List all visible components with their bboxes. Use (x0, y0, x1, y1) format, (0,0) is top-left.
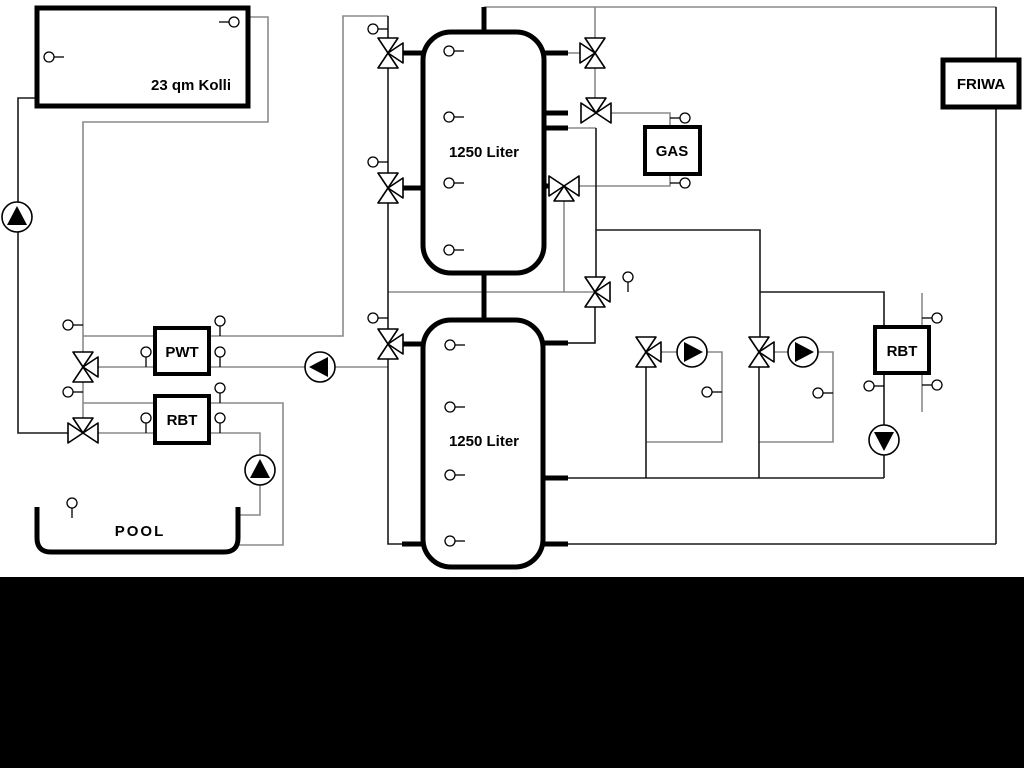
three-way-valve-heating-circuit-1 (636, 337, 661, 367)
sensor-rail-right-1-icon (922, 313, 942, 323)
rbt-left-label: RBT (167, 412, 198, 429)
tank-lower-label: 1250 Liter (449, 433, 519, 450)
sensor-rail-1-icon (368, 24, 388, 34)
sensor-circuit2-icon (813, 388, 833, 398)
gas-label: GAS (656, 143, 689, 160)
pipe-rail-tanks-right (568, 128, 596, 343)
sensor-rail-3-icon (368, 313, 388, 323)
three-way-valve-gas-supply (581, 98, 611, 123)
three-way-valve-pwt (73, 352, 98, 382)
three-way-valve-gas-return (549, 176, 579, 201)
three-way-valve-tank-low-left (378, 329, 403, 359)
sensor-rbtl-right-bottom-icon (215, 413, 225, 433)
footer-black-band (0, 577, 1024, 768)
three-way-valve-heating-circuit-2 (749, 337, 774, 367)
sensor-solar-2-icon (63, 387, 83, 397)
solar-pump-icon (2, 202, 32, 232)
sensor-pwt-right-bottom-icon (215, 347, 225, 367)
pwt-pump-icon (305, 352, 335, 382)
three-way-valve-rbt-left (68, 418, 98, 443)
three-way-valve-tank-top-right (580, 38, 605, 68)
three-way-valve-tank-top-left (378, 38, 403, 68)
sensor-rbtr-bottom-icon (864, 381, 884, 391)
friwa-label: FRIWA (957, 76, 1005, 93)
hydraulic-schematic: 23 qm Kolli 1250 Liter 1250 Liter GAS FR… (0, 0, 1024, 577)
sensor-gas-top-icon (670, 113, 690, 123)
sensor-circuit1-icon (702, 387, 722, 397)
tank-upper-label: 1250 Liter (449, 144, 519, 161)
sensor-gas-bottom-icon (670, 178, 690, 188)
heating-pump-1-icon (677, 337, 707, 367)
pipe-solar-cold (18, 98, 68, 433)
sensor-pool-icon (67, 498, 77, 518)
sensor-pwt-left-icon (141, 347, 151, 367)
pipe-heating-supply (596, 230, 760, 337)
sensor-heating-supply-icon (623, 272, 633, 292)
pool-label: POOL (115, 523, 166, 540)
sensor-rbtl-left-icon (141, 413, 151, 433)
rbt-right-label: RBT (887, 343, 918, 360)
pipe-rail-tanks-left (388, 16, 402, 544)
rbt-right-pump-icon (869, 425, 899, 455)
pool-pump-icon (245, 455, 275, 485)
heating-pump-2-icon (788, 337, 818, 367)
pwt-label: PWT (165, 344, 198, 361)
pipe-group-returns (646, 367, 759, 478)
sensor-solar-1-icon (63, 320, 83, 330)
three-way-valve-tank-mid-left (378, 173, 403, 203)
schematic-screen: 23 qm Kolli 1250 Liter 1250 Liter GAS FR… (0, 0, 1024, 768)
collector-label: 23 qm Kolli (151, 77, 231, 94)
sensor-pwt-right-top-icon (215, 316, 225, 336)
schematic-canvas: 23 qm Kolli 1250 Liter 1250 Liter GAS FR… (0, 0, 1024, 577)
sensor-rail-right-2-icon (922, 380, 942, 390)
sensor-rbtl-right-top-icon (215, 383, 225, 403)
pipe-rbt-right-supply (760, 292, 884, 327)
pipe-gas-supply (611, 113, 670, 127)
sensor-rail-2-icon (368, 157, 388, 167)
